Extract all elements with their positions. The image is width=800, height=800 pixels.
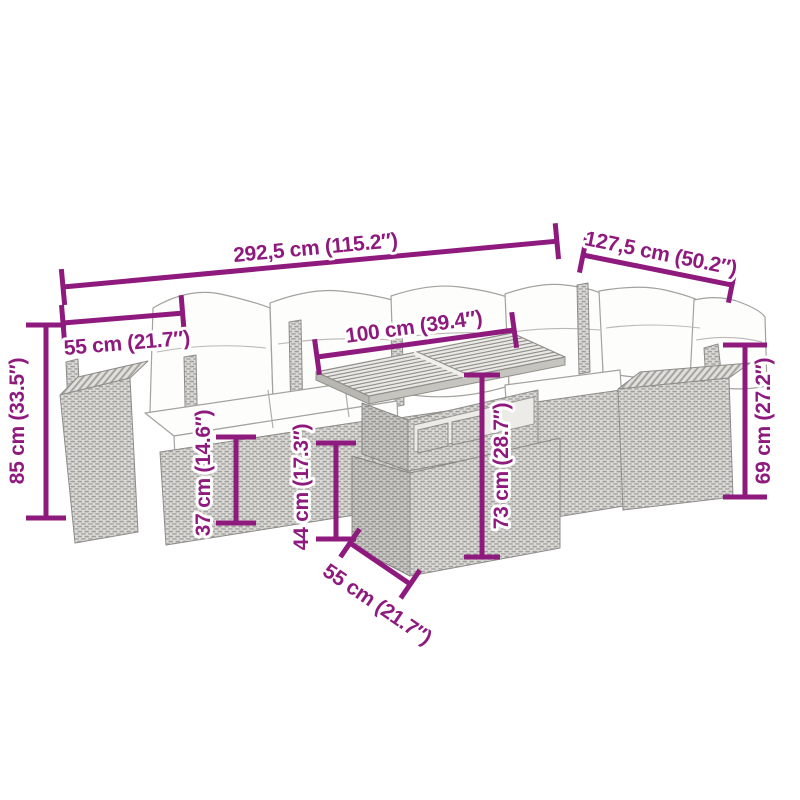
dimension-label: 85 cm (33.5″): [6, 358, 29, 484]
dimension-label: 37 cm (14.6″): [192, 410, 215, 536]
table-base-left: [352, 456, 410, 576]
armrest-left: [60, 361, 148, 543]
back-post: [577, 283, 590, 374]
dimension-label: 69 cm (27.2″): [752, 358, 775, 484]
dimension-tick: [181, 295, 184, 331]
armrest-right-front: [618, 378, 733, 510]
dimension-tick: [61, 269, 64, 305]
dimension-label: 73 cm (28.7″): [490, 403, 513, 529]
dimension-label: 44 cm (17.3″): [290, 424, 313, 550]
back-cushion: [599, 287, 704, 378]
dimension-tick: [555, 223, 558, 259]
dimension-back-height: 85 cm (33.5″): [6, 325, 66, 518]
diagram-canvas: 292,5 cm (115.2″) 127,5 cm (50.2″) 55 cm…: [0, 0, 800, 800]
product-dimension-diagram: 292,5 cm (115.2″) 127,5 cm (50.2″) 55 cm…: [0, 0, 800, 800]
back-cushion: [150, 292, 273, 414]
armrest-left-front: [60, 378, 138, 543]
